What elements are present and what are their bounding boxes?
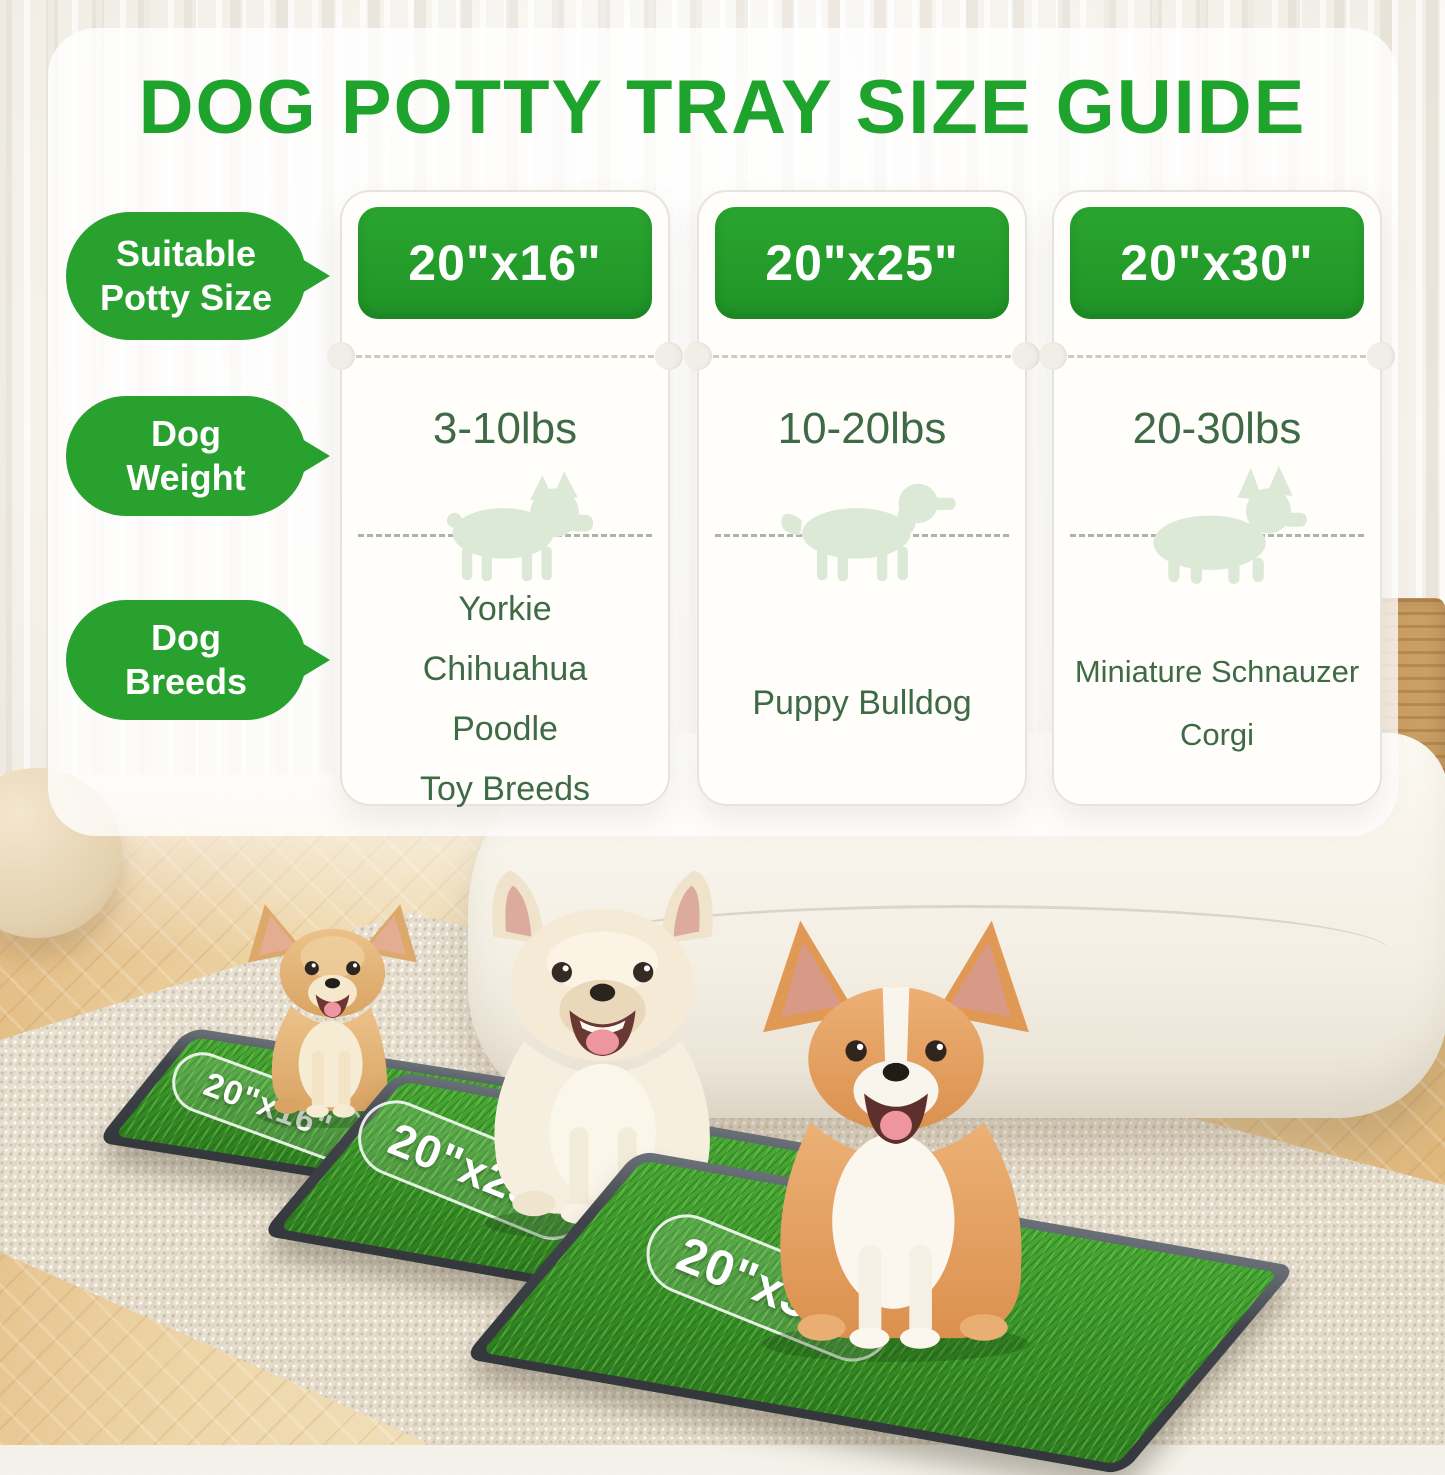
ticket-notch-right	[1012, 342, 1040, 370]
page-title: DOG POTTY TRAY SIZE GUIDE	[0, 64, 1445, 151]
breed-list: Yorkie Chihuahua Poodle Toy Breeds	[342, 590, 668, 830]
size-card-20x16: 20"x16" 3-10lbs Yorkie Chihuahua Poodle …	[340, 190, 670, 806]
perforation-line	[356, 355, 654, 358]
breed-item: Chihuahua	[342, 650, 668, 689]
row-label-dog-breeds: Dog Breeds	[66, 600, 306, 720]
spaniel-silhouette-icon	[759, 458, 965, 590]
size-card-20x30: 20"x30" 20-30lbs Miniature Schnauzer Cor…	[1052, 190, 1382, 806]
perforation-line	[713, 355, 1011, 358]
breed-item: Yorkie	[342, 590, 668, 629]
breed-item: Corgi	[1054, 717, 1380, 753]
breed-item: Puppy Bulldog	[699, 684, 1025, 723]
size-badge: 20"x30"	[1070, 207, 1364, 319]
breed-item: Poodle	[342, 710, 668, 749]
size-badge: 20"x16"	[358, 207, 652, 319]
weight-label: 10-20lbs	[699, 404, 1025, 454]
breed-item: Toy Breeds	[342, 770, 668, 809]
corgi-illustration	[722, 910, 1070, 1362]
perforation-line	[1068, 355, 1366, 358]
ticket-notch-right	[655, 342, 683, 370]
breed-list: Miniature Schnauzer Corgi	[1054, 654, 1380, 780]
ticket-notch-left	[684, 342, 712, 370]
breed-item: Miniature Schnauzer	[1054, 654, 1380, 690]
breed-list: Puppy Bulldog	[699, 684, 1025, 744]
size-card-20x25: 20"x25" 10-20lbs Puppy Bulldog	[697, 190, 1027, 806]
ticket-notch-left	[1039, 342, 1067, 370]
row-label-dog-weight: Dog Weight	[66, 396, 306, 516]
weight-label: 3-10lbs	[342, 404, 668, 454]
size-badge: 20"x25"	[715, 207, 1009, 319]
ticket-notch-left	[327, 342, 355, 370]
weight-label: 20-30lbs	[1054, 404, 1380, 454]
row-label-potty-size: Suitable Potty Size	[66, 212, 306, 340]
corgi-silhouette-icon	[1114, 458, 1320, 590]
french-bulldog-silhouette-icon	[402, 458, 608, 590]
ticket-notch-right	[1367, 342, 1395, 370]
